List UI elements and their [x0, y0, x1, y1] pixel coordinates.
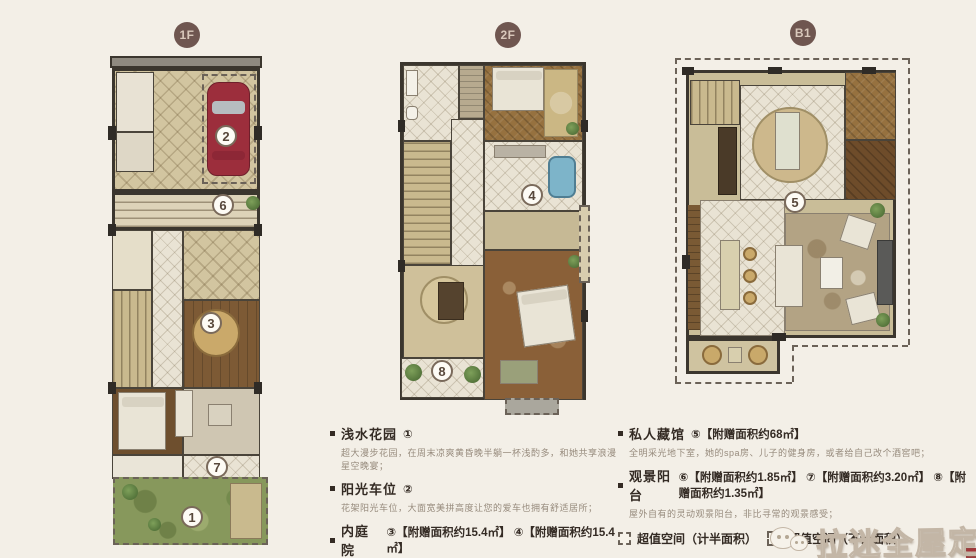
stool	[743, 247, 757, 261]
wall-pier	[108, 126, 116, 140]
car-rear	[212, 151, 245, 160]
marker-garden-1: 1	[181, 506, 203, 528]
sofa	[775, 245, 803, 307]
wechat-bubble-small	[790, 535, 808, 551]
wechat-eye	[801, 541, 804, 544]
legend-left-column: 浅水花园 ① 超大漫步花园，在周末凉爽黄昏晚半躺一杯浅酌多，和她共享浪漫星空晚宴…	[330, 424, 622, 558]
legend-nums: ①	[403, 427, 413, 441]
bullet-icon	[330, 431, 335, 436]
desk	[438, 282, 464, 320]
master-bed	[516, 285, 575, 348]
plant-icon	[405, 364, 422, 381]
legend-item-viewbalcony: 观景阳台 ⑥【附赠面积约1.85㎡】 ⑦【附赠面积约3.20㎡】 ⑧【附赠面积约…	[618, 466, 974, 520]
bullet-icon	[618, 431, 623, 436]
legend-title: 观景阳台	[629, 466, 673, 504]
wall-pier	[682, 67, 694, 75]
floor-label-b1: B1	[790, 20, 816, 46]
stool	[743, 269, 757, 283]
wall-pier	[398, 260, 405, 272]
corridor	[152, 230, 183, 388]
plan-1f: 2 6 3 7 1	[108, 56, 270, 548]
legend-item-collection: 私人藏馆 ⑤【附赠面积约68㎡】 全明采光地下室，她的spa房、儿子的健身房，或…	[618, 424, 974, 459]
writing-desk	[500, 360, 538, 384]
storage-room	[845, 72, 896, 140]
tasting-area	[700, 200, 785, 336]
legend-item-parking: 阳光车位 ② 花架阳光车位，大面宽美拼高度让您的爱车也拥有舒适居所；	[330, 479, 622, 514]
dashed-box-icon	[618, 532, 631, 545]
brand-watermark: 拉迷全屋定制	[770, 518, 976, 558]
b1-outline-bottom-left	[675, 382, 792, 384]
storage-room	[116, 132, 154, 172]
wall-pier	[581, 310, 588, 322]
plan-2f: 4 8	[398, 60, 590, 420]
toilet	[406, 106, 418, 120]
wall-pier	[862, 67, 876, 74]
legend-title: 内庭院	[341, 521, 380, 558]
legend-item-courtyard: 内庭院 ③【附赠面积约15.4㎡】 ④【附赠面积约15.4㎡】 附赠室内庭院，可…	[330, 521, 622, 558]
bathroom	[112, 230, 152, 290]
floorplan-sheet: 1F 2F B1 2 6 3	[0, 0, 976, 558]
wechat-eye	[785, 535, 789, 539]
planter-deck	[112, 455, 183, 479]
b1-outline-right	[908, 58, 910, 345]
bullet-icon	[330, 538, 335, 543]
stairs	[112, 290, 152, 388]
vanity	[494, 145, 546, 158]
stairs	[690, 80, 740, 125]
brand-watermark-text: 拉迷全屋定制	[816, 516, 976, 558]
plant-icon	[876, 313, 890, 327]
legend-title: 私人藏馆	[629, 424, 685, 443]
key-label: 超值空间（计半面积）	[637, 530, 757, 547]
bed-pillow	[122, 397, 164, 407]
plant-icon	[464, 366, 481, 383]
wall-pier	[254, 382, 262, 394]
wall-pier	[254, 224, 262, 236]
legend-nums: ②	[403, 482, 413, 496]
wechat-eye	[777, 535, 781, 539]
marker-courtyard-3: 3	[200, 312, 222, 334]
coffee-table	[208, 404, 232, 426]
wall-pier	[108, 224, 116, 236]
garden-patio	[230, 483, 262, 539]
wall-pier	[581, 120, 588, 132]
long-table	[720, 240, 740, 310]
bar-counter	[718, 127, 737, 195]
rear-balcony	[505, 398, 559, 415]
legend-nums: ⑤【附赠面积约68㎡】	[691, 426, 806, 442]
bed	[118, 392, 166, 450]
marker-balcony-7: 7	[206, 456, 228, 478]
floor-label-1f: 1F	[174, 22, 200, 48]
kitchen	[183, 230, 260, 300]
bed-pillow	[521, 289, 568, 305]
marker-balcony-8: 8	[431, 360, 453, 382]
sofa	[175, 390, 193, 437]
bullet-icon	[330, 486, 335, 491]
marker-courtyard-4: 4	[521, 184, 543, 206]
plant-icon	[246, 196, 260, 210]
wall-pier	[768, 67, 782, 74]
entry-room	[116, 72, 154, 132]
plan-b1: 5	[672, 55, 914, 387]
bullet-icon	[618, 483, 623, 488]
key-half-area: 超值空间（计半面积）	[618, 530, 757, 547]
rattan-chair	[748, 345, 768, 365]
marker-collection-5: 5	[784, 191, 806, 213]
coffee-table	[820, 257, 843, 289]
floor-label-2f: 2F	[495, 22, 521, 48]
wechat-icon	[770, 523, 810, 558]
wall-pier	[254, 126, 262, 140]
legend-desc: 花架阳光车位，大面宽美拼高度让您的爱车也拥有舒适居所；	[341, 501, 622, 514]
stool	[743, 291, 757, 305]
plant-icon	[566, 122, 579, 135]
plant-icon	[870, 203, 885, 218]
legend-title: 阳光车位	[341, 479, 397, 498]
legend-desc: 全明采光地下室，她的spa房、儿子的健身房，或者给自己改个酒窖吧；	[629, 446, 974, 459]
front-wall	[110, 56, 262, 68]
b1-outline-left	[675, 58, 677, 382]
plant-icon	[148, 518, 161, 531]
legend-item-garden: 浅水花园 ① 超大漫步花园，在周末凉爽黄昏晚半躺一杯浅酌多，和她共享浪漫星空晚宴…	[330, 424, 622, 472]
wall-pier	[108, 382, 116, 394]
entry-porch	[112, 192, 260, 230]
marker-balcony-6: 6	[212, 194, 234, 216]
spa-room	[845, 140, 896, 200]
game-table	[775, 112, 800, 170]
rattan-chair	[702, 345, 722, 365]
side-table	[728, 347, 742, 363]
legend-desc: 超大漫步花园，在周末凉爽黄昏晚半躺一杯浅酌多，和她共享浪漫星空晚宴；	[341, 446, 622, 472]
bed	[492, 67, 544, 111]
plant-icon	[122, 484, 138, 500]
legend-title: 浅水花园	[341, 424, 397, 443]
closet	[459, 65, 484, 119]
bathtub	[406, 70, 418, 96]
side-balcony	[579, 205, 590, 283]
tv-panel	[877, 240, 893, 305]
marker-parking: 2	[215, 125, 237, 147]
wall-pier	[682, 255, 690, 269]
stairs	[403, 141, 451, 265]
hallway	[484, 211, 583, 250]
bathtub-blue	[548, 156, 576, 198]
b1-outline-top	[675, 58, 908, 60]
wall-pier	[398, 120, 405, 132]
wechat-eye	[795, 541, 798, 544]
wall-pier	[772, 333, 786, 341]
b1-outline-bottom-right	[792, 345, 908, 347]
legend-nums: ③【附赠面积约15.4㎡】 ④【附赠面积约15.4㎡】	[386, 524, 622, 556]
bed-pillow	[496, 71, 542, 80]
car-windshield	[212, 101, 245, 114]
b1-outline-step	[792, 345, 794, 382]
legend-nums: ⑥【附赠面积约1.85㎡】 ⑦【附赠面积约3.20㎡】 ⑧【附赠面积约1.35㎡…	[679, 469, 974, 501]
